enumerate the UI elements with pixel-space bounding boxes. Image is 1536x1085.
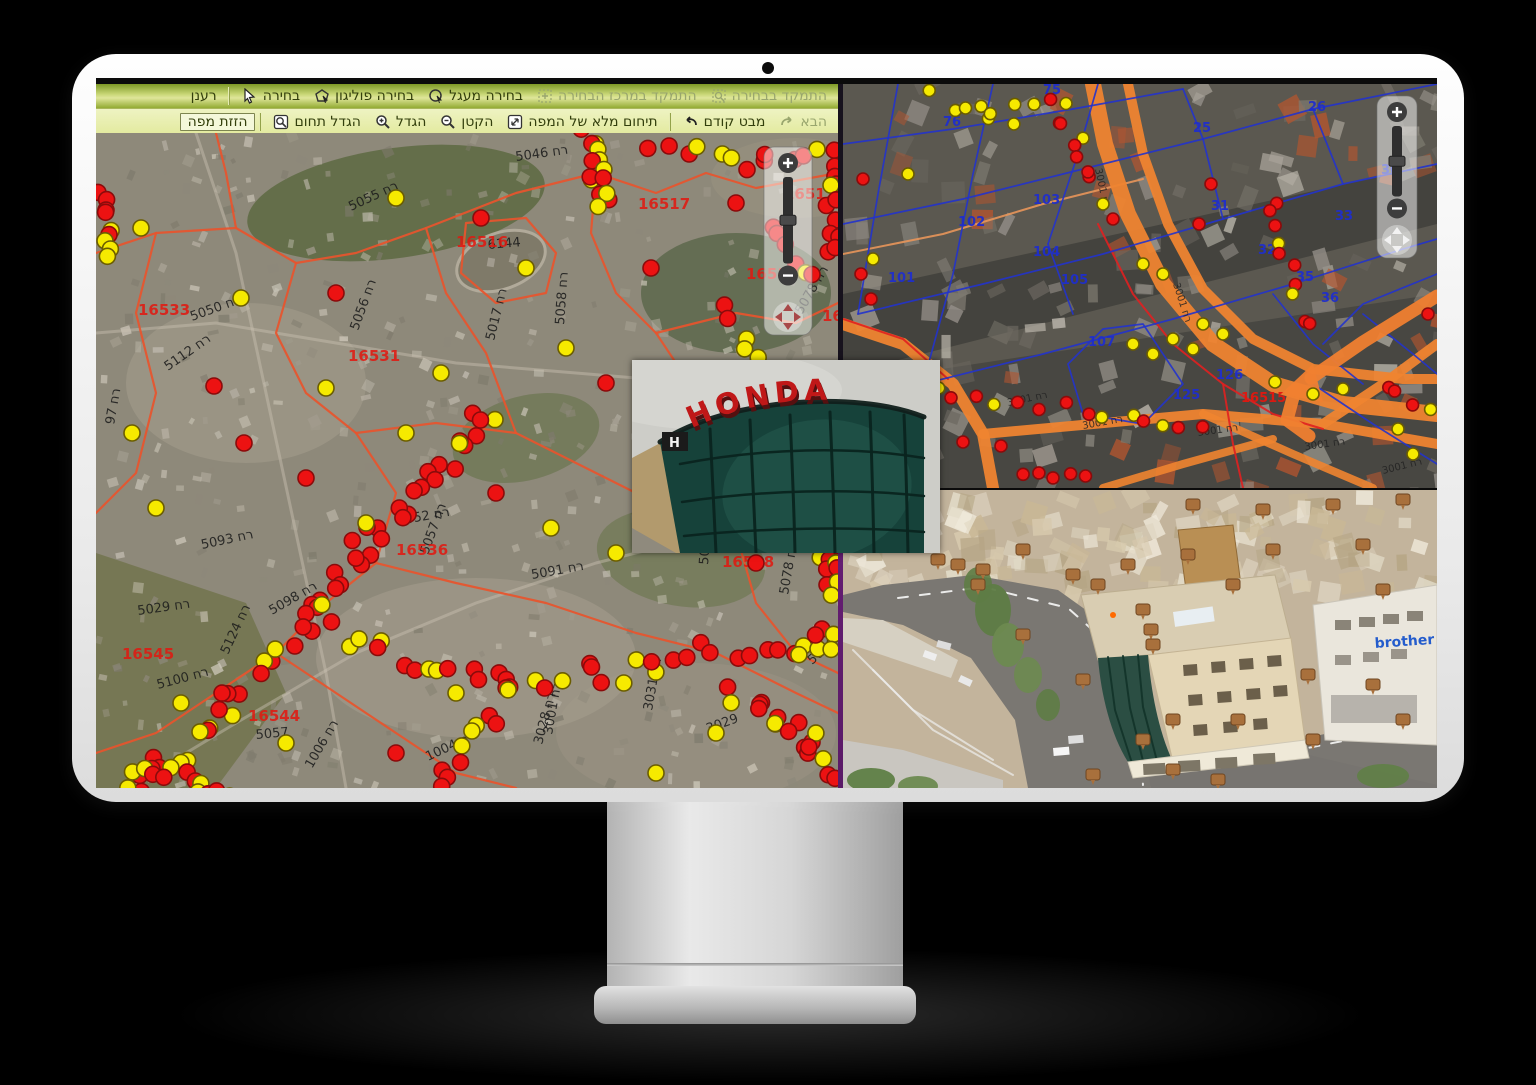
monitor-stand-neck [607, 798, 903, 992]
red-dot [473, 412, 489, 428]
map-label: 125 [1173, 388, 1200, 403]
toolbar-button-label: בחירה מעגל [449, 89, 523, 103]
yellow-dot [1197, 318, 1209, 330]
toolbar-separator [670, 113, 671, 131]
red-dot [857, 173, 869, 185]
toolbar-button-full-extent-1-3[interactable]: תיחום מלא של המפה [500, 113, 664, 131]
yellow-dot [558, 340, 574, 356]
red-dot [295, 619, 311, 635]
honda-building-photo: HONDAHONDAH [632, 360, 940, 553]
yellow-dot [708, 725, 724, 741]
red-dot [748, 555, 764, 571]
red-dot [1069, 139, 1081, 151]
yellow-dot [1287, 288, 1299, 300]
red-dot [1012, 396, 1024, 408]
red-dot [344, 533, 360, 549]
red-dot [584, 659, 600, 675]
toolbar-button-button-0-6[interactable]: רענן [184, 88, 224, 104]
red-dot [826, 142, 838, 158]
red-dot [1273, 248, 1285, 260]
yellow-dot [902, 168, 914, 180]
yellow-dot [1097, 198, 1109, 210]
red-dot [537, 680, 553, 696]
yellow-dot [984, 108, 996, 120]
yellow-dot [388, 190, 404, 206]
yellow-dot [689, 139, 705, 155]
map-label: 31 [1211, 199, 1229, 214]
red-dot [598, 375, 614, 391]
red-dot [679, 649, 695, 665]
red-dot [1138, 415, 1150, 427]
red-dot [1193, 218, 1205, 230]
yellow-dot [99, 248, 115, 264]
red-dot [593, 675, 609, 691]
map-label: H [669, 436, 680, 451]
toolbar-button-cursor-0-4[interactable]: בחירה [235, 87, 307, 105]
toolbar-button-button-1-8[interactable]: הזזת מפה [180, 113, 256, 131]
red-dot [643, 260, 659, 276]
toolbar-button-next-view-1-0: הבא [772, 113, 834, 131]
toolbar-button-label: הזזת מפה [188, 115, 248, 129]
honda-canvas: HONDAHONDAH [632, 360, 940, 553]
yellow-dot [500, 682, 516, 698]
yellow-dot [487, 412, 503, 428]
next-view-icon [779, 114, 795, 130]
red-dot [1017, 468, 1029, 480]
red-dot [1269, 220, 1281, 232]
red-dot [1080, 470, 1092, 482]
map-label: 104 [1033, 245, 1060, 260]
red-dot [298, 470, 314, 486]
red-dot [702, 645, 718, 661]
red-dot [720, 679, 736, 695]
red-dot [1304, 318, 1316, 330]
yellow-dot [823, 177, 838, 193]
full-extent-icon [507, 114, 523, 130]
yellow-dot [1425, 403, 1437, 415]
red-dot [751, 701, 767, 717]
red-dot [211, 702, 227, 718]
map-label: 16550 [822, 307, 838, 325]
yellow-dot [555, 673, 571, 689]
map-label: 103 [1033, 193, 1060, 208]
red-dot [1107, 213, 1119, 225]
yellow-dot [1337, 383, 1349, 395]
toolbar-button-label: מבט קודם [704, 115, 766, 129]
yellow-dot [124, 425, 140, 441]
toolbar-button-label: בחירה פוליגון [335, 89, 414, 103]
yellow-dot [1217, 328, 1229, 340]
yellow-dot [358, 515, 374, 531]
red-dot [1422, 308, 1434, 320]
yellow-dot [120, 780, 136, 788]
red-dot [434, 778, 450, 788]
red-dot [324, 614, 340, 630]
map-label: 16533 [138, 301, 190, 319]
yellow-dot [148, 500, 164, 516]
yellow-dot [1157, 420, 1169, 432]
yellow-dot [628, 652, 644, 668]
map-label: 26 [1308, 100, 1326, 115]
map-label: 16516 [456, 233, 508, 251]
red-dot [236, 435, 252, 451]
screen: התמקד בבחירההתמקד במרכז הבחירהבחירה מעגל… [96, 78, 1437, 788]
red-dot [1045, 93, 1057, 105]
red-dot [98, 204, 114, 220]
circle-select-icon [428, 88, 444, 104]
red-dot [801, 739, 817, 755]
yellow-dot [923, 85, 935, 97]
map-toolbar: התמקד בבחירההתמקד במרכז הבחירהבחירה מעגל… [96, 84, 838, 134]
red-dot [1055, 117, 1067, 129]
red-dot [1172, 422, 1184, 434]
toolbar-button-label: תיחום מלא של המפה [528, 115, 657, 129]
red-dot [945, 392, 957, 404]
map-label: 101 [888, 271, 915, 286]
yellow-dot [278, 735, 294, 751]
red-dot [827, 770, 838, 786]
toolbar-row-selection: התמקד בבחירההתמקד במרכז הבחירהבחירה מעגל… [96, 84, 838, 108]
toolbar-button-focus-selection-0-0: התמקד בבחירה [704, 87, 834, 105]
red-dot [855, 268, 867, 280]
red-dot [473, 210, 489, 226]
yellow-dot [791, 647, 807, 663]
yellow-dot [543, 520, 559, 536]
red-dot [253, 666, 269, 682]
red-dot [370, 640, 386, 656]
map-label: 16536 [396, 541, 448, 559]
toolbar-button-label: התמקד במרכז הבחירה [558, 89, 697, 103]
zoom-area-icon [273, 114, 289, 130]
yellow-dot [318, 380, 334, 396]
yellow-dot [1137, 258, 1149, 270]
focus-center-icon [537, 88, 553, 104]
toolbar-button-focus-center-0-1: התמקד במרכז הבחירה [530, 87, 704, 105]
toolbar-button-zoom-in-1-5[interactable]: הגדל [368, 113, 434, 131]
yellow-dot [464, 723, 480, 739]
yellow-dot [1127, 338, 1139, 350]
red-dot [827, 240, 838, 256]
map-label: 16515 [1241, 391, 1286, 406]
map-label: 102 [958, 215, 985, 230]
yellow-dot [1147, 348, 1159, 360]
red-dot [1065, 468, 1077, 480]
monitor-stand-base [594, 986, 916, 1024]
yellow-dot [1307, 388, 1319, 400]
map-label: 25 [1193, 121, 1211, 136]
red-dot [406, 483, 422, 499]
toolbar-button-label: התמקד בבחירה [732, 89, 827, 103]
red-dot [206, 378, 222, 394]
red-dot [1033, 404, 1045, 416]
yellow-dot [723, 695, 739, 711]
red-dot [640, 140, 656, 156]
yellow-dot [398, 425, 414, 441]
yellow-dot [1167, 333, 1179, 345]
toolbar-button-polygon-select-0-3[interactable]: בחירה פוליגון [307, 87, 421, 105]
map-label: 76 [943, 115, 961, 130]
cursor-icon [242, 88, 258, 104]
red-dot [440, 661, 456, 677]
red-dot [328, 285, 344, 301]
red-dot [471, 672, 487, 688]
zoom-in-icon [375, 114, 391, 130]
yellow-dot [823, 587, 838, 603]
toolbar-button-label: הגדל תחום [294, 115, 360, 129]
red-dot [328, 580, 344, 596]
yellow-dot [192, 724, 208, 740]
yellow-dot [823, 641, 838, 657]
yellow-dot [173, 695, 189, 711]
monitor-frame: התמקד בבחירההתמקד במרכז הבחירהבחירה מעגל… [72, 54, 1464, 802]
toolbar-separator [229, 87, 230, 105]
red-dot [373, 531, 389, 547]
yellow-dot [454, 738, 470, 754]
yellow-dot [452, 435, 468, 451]
red-dot [488, 485, 504, 501]
red-dot [156, 769, 172, 785]
yellow-dot [314, 597, 330, 613]
red-dot [214, 685, 230, 701]
red-dot [781, 723, 797, 739]
red-dot [742, 648, 758, 664]
yellow-dot [815, 751, 831, 767]
map-label: 33 [1335, 209, 1353, 224]
yellow-dot [616, 675, 632, 691]
red-dot [770, 642, 786, 658]
red-dot [1071, 151, 1083, 163]
toolbar-button-label: הקטן [461, 115, 493, 129]
yellow-dot [433, 365, 449, 381]
red-dot [728, 195, 744, 211]
red-dot [1060, 397, 1072, 409]
yellow-dot [826, 626, 838, 642]
yellow-dot [608, 545, 624, 561]
map-label: 16545 [122, 645, 174, 663]
map-label: 16517 [638, 195, 690, 213]
toolbar-button-zoom-out-1-4[interactable]: הקטן [433, 113, 500, 131]
map-zoom-control[interactable] [1377, 96, 1417, 258]
yellow-dot [1187, 343, 1199, 355]
red-dot [808, 627, 824, 643]
red-dot [661, 138, 677, 154]
red-dot [1389, 385, 1401, 397]
red-dot [488, 716, 504, 732]
toolbar-separator [260, 113, 261, 131]
prev-view-icon [683, 114, 699, 130]
red-dot [287, 638, 303, 654]
red-dot [865, 293, 877, 305]
yellow-dot [351, 631, 367, 647]
map-zoom-control[interactable] [764, 147, 812, 335]
yellow-dot [867, 253, 879, 265]
red-dot [1264, 205, 1276, 217]
red-dot [388, 745, 404, 761]
red-dot [1082, 166, 1094, 178]
yellow-dot [648, 765, 664, 781]
red-dot [1197, 421, 1209, 433]
red-dot [739, 162, 755, 178]
yellow-dot [1269, 376, 1281, 388]
map-label: 107 [1088, 335, 1115, 350]
red-dot [1205, 178, 1217, 190]
red-dot [1033, 467, 1045, 479]
red-dot [995, 440, 1007, 452]
yellow-dot [233, 290, 249, 306]
red-dot [595, 170, 611, 186]
focus-selection-icon [711, 88, 727, 104]
zoom-out-icon [440, 114, 456, 130]
red-dot [1083, 408, 1095, 420]
polygon-select-icon [314, 88, 330, 104]
yellow-dot [448, 685, 464, 701]
toolbar-button-circle-select-0-2[interactable]: בחירה מעגל [421, 87, 530, 105]
stand-ridge [607, 963, 903, 966]
toolbar-button-zoom-area-1-6[interactable]: הגדל תחום [266, 113, 367, 131]
yellow-dot [1157, 268, 1169, 280]
yellow-dot [590, 199, 606, 215]
red-dot [1289, 259, 1301, 271]
yellow-dot [1060, 98, 1072, 110]
map-label: 126 [1216, 368, 1243, 383]
red-dot [453, 754, 469, 770]
zoom-slider-handle [780, 215, 796, 225]
yellow-dot [518, 260, 534, 276]
red-dot [720, 311, 736, 327]
red-dot [447, 461, 463, 477]
red-dot [395, 510, 411, 526]
yellow-dot [960, 102, 972, 114]
map-label: 16544 [248, 707, 300, 725]
red-dot [1047, 472, 1059, 484]
toolbar-button-label: בחירה [263, 89, 300, 103]
yellow-dot [133, 220, 149, 236]
yellow-dot [1028, 98, 1040, 110]
yellow-dot [1009, 98, 1021, 110]
yellow-dot [988, 399, 1000, 411]
red-dot [1407, 399, 1419, 411]
red-dot [348, 550, 364, 566]
yellow-dot [1096, 411, 1108, 423]
yellow-dot [723, 150, 739, 166]
toolbar-row-navigation: הבאמבט קודםתיחום מלא של המפההקטןהגדלהגדל… [96, 108, 838, 134]
red-dot [828, 192, 838, 208]
zoom-slider-handle [1389, 156, 1405, 166]
toolbar-button-label: רענן [191, 89, 217, 103]
map-label: 105 [1061, 273, 1088, 288]
yellow-dot [1008, 118, 1020, 130]
webcam-icon [762, 62, 774, 74]
toolbar-button-label: הגדל [396, 115, 427, 129]
map-label: 16531 [348, 347, 400, 365]
red-dot [957, 436, 969, 448]
map-label: 36 [1321, 291, 1339, 306]
yellow-dot [1407, 448, 1419, 460]
red-dot [970, 390, 982, 402]
yellow-dot [1392, 423, 1404, 435]
toolbar-button-label: הבא [800, 115, 827, 129]
red-dot [644, 654, 660, 670]
toolbar-button-prev-view-1-1[interactable]: מבט קודם [676, 113, 773, 131]
